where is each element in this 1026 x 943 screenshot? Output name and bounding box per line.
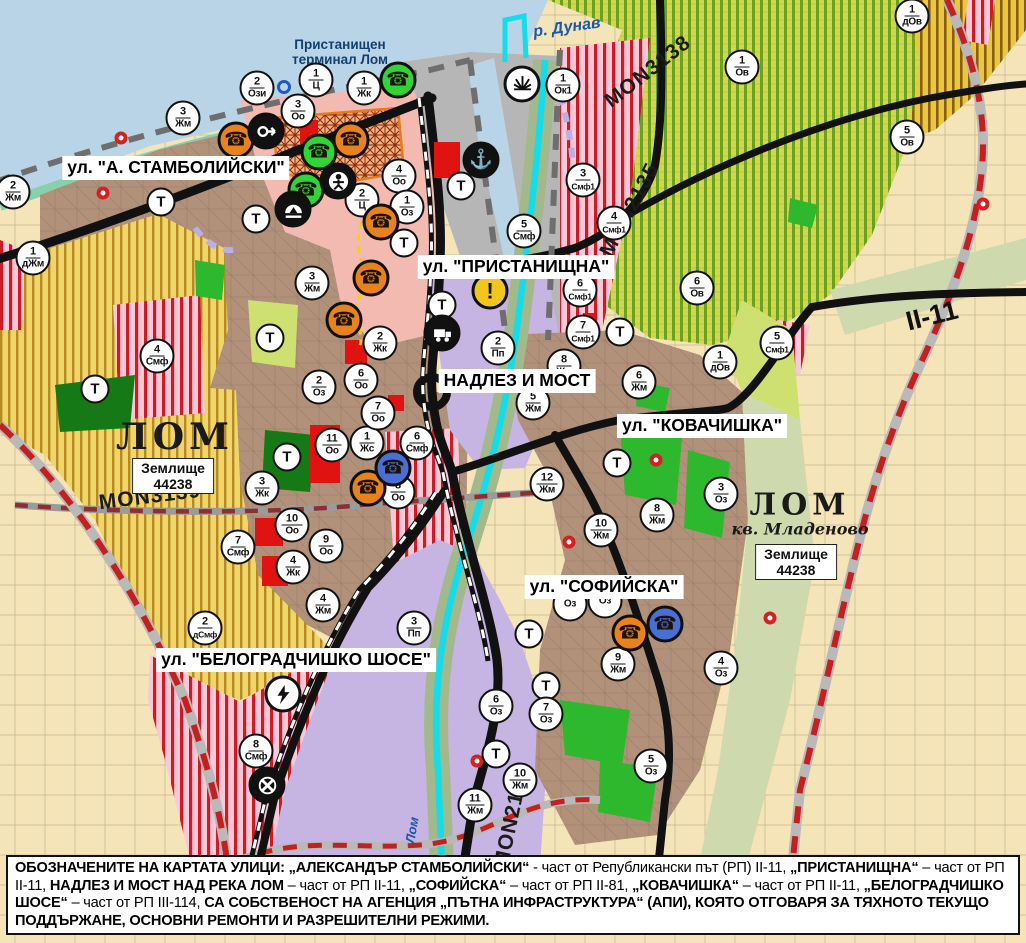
zone-marker: 5Смф [507,214,542,249]
zone-marker: 3Пп [397,611,432,646]
terrain-marker-t: Т [482,740,511,769]
terrain-marker-t: Т [147,188,176,217]
zone-marker: 4Оо [382,159,417,194]
zone-marker: 6Ов [680,271,715,306]
point-marker-red [977,198,990,211]
anchor-icon: ⚓ [463,142,500,179]
zone-marker: 1дОв [895,0,930,34]
zone-marker: 4Оз [704,651,739,686]
telephone-icon: ☎ [326,302,363,339]
street-label: ул. "КОВАЧИШКА" [617,414,787,438]
zone-marker: 10Жм [584,513,619,548]
city-label-lom-mladenovo: ЛОМ [750,488,851,523]
zone-marker: 2Ози [240,71,275,106]
port-terminal-label: Пристанищен терминал Лом [292,37,388,67]
point-marker-red [115,132,128,145]
zone-marker: 8Смф [239,734,274,769]
telephone-icon: ☎ [333,122,370,159]
zoning-map-lom: Пристанищен терминал Лом ЛОМ Землище4423… [0,0,1026,943]
zone-marker: 7Смф [221,530,256,565]
city-label-lom: ЛОМ [116,416,234,458]
truck-icon [424,315,461,352]
zone-marker: 8Жм [640,498,675,533]
terrain-marker-t: Т [606,318,635,347]
arrow-icon [248,113,285,150]
zone-marker: 4Жм [306,588,341,623]
terrain-marker-t: Т [603,449,632,478]
rail-crossing-icon [249,767,286,804]
zone-marker: 10Оо [275,508,310,543]
terrain-marker-t: Т [273,443,302,472]
zone-marker: 9Оо [309,529,344,564]
street-label: ул. "ПРИСТАНИЩНА" [418,255,615,279]
zone-marker: 4Смф [140,339,175,374]
zone-marker: 6Жм [622,365,657,400]
zone-marker: 1дОв [703,345,738,380]
sun-fan-icon [504,66,541,103]
point-marker-red [650,454,663,467]
zone-marker: 3Жм [295,266,330,301]
zone-marker: 3Жм [166,101,201,136]
zone-marker: 2Жк [363,326,398,361]
telephone-icon: ☎ [375,450,412,487]
zone-marker: 2дСмф [188,611,223,646]
zone-marker: 2Оз [302,370,337,405]
landplot-box-1: Землище44238 [132,458,214,494]
telephone-icon: ☎ [380,62,417,99]
zone-marker: 10Жм [503,763,538,798]
zone-marker: 3Оо [281,94,316,129]
zone-marker: 1Жк [347,71,382,106]
zone-marker: 5Оз [634,749,669,784]
park-green-6 [195,260,225,300]
zone-marker: 9Жм [601,647,636,682]
park-green-3 [560,700,630,765]
telephone-icon: ☎ [363,204,400,241]
street-label: ул. "А. СТАМБОЛИЙСКИ" [62,156,289,180]
zone-marker: 12Жм [530,467,565,502]
zone-marker: 4Смф1 [597,206,632,241]
zone-marker: 11Оо [315,428,350,463]
telephone-icon: ☎ [612,615,649,652]
terrain-marker-t: Т [256,324,285,353]
zone-marker: 7Оз [529,697,564,732]
street-label: НАДЛЕЗ И МОСТ [439,369,596,393]
zone-marker: 1Ц [299,63,334,98]
telephone-icon: ☎ [353,260,390,297]
point-marker-red [97,187,110,200]
zone-marker: 11Жм [458,788,493,823]
terrain-marker-t: Т [515,620,544,649]
zone-marker: 3Оз [704,477,739,512]
telephone-icon: ☎ [647,606,684,643]
point-marker-red [563,536,576,549]
landplot-box-2: Землище44238 [755,544,837,580]
cave-icon [275,191,312,228]
person-monument-icon [320,163,357,200]
zone-marker: 6Оз [479,689,514,724]
point-marker-blue-ring [277,80,291,94]
zone-marker: 1дЖм [16,241,51,276]
zone-marker: 1Ов [725,50,760,85]
terrain-marker-t: Т [81,375,110,404]
point-marker-red [764,612,777,625]
map-caption: ОБОЗНАЧЕНИТЕ НА КАРТАТА УЛИЦИ: „АЛЕКСАНД… [6,855,1020,935]
zone-marker: 5Смф1 [760,326,795,361]
zone-marker: 1Ок1 [546,68,581,103]
zone-marker: 6Оо [344,363,379,398]
quarter-label-mladenovo: кв. Младеново [731,520,868,539]
street-label: ул. "СОФИЙСКА" [525,575,684,599]
zone-marker: 3Жк [245,471,280,506]
terrain-marker-t: Т [242,205,271,234]
zone-marker: 5Ов [890,120,925,155]
zone-marker: 7Оо [361,396,396,431]
street-label: ул. "БЕЛОГРАДЧИШКО ШОСЕ" [156,648,436,672]
zone-marker: 2Пп [481,331,516,366]
zone-marker: 3Смф1 [566,163,601,198]
lightning-icon [265,676,302,713]
zone-marker: 7Смф1 [566,315,601,350]
zone-marker: 4Жк [276,550,311,585]
